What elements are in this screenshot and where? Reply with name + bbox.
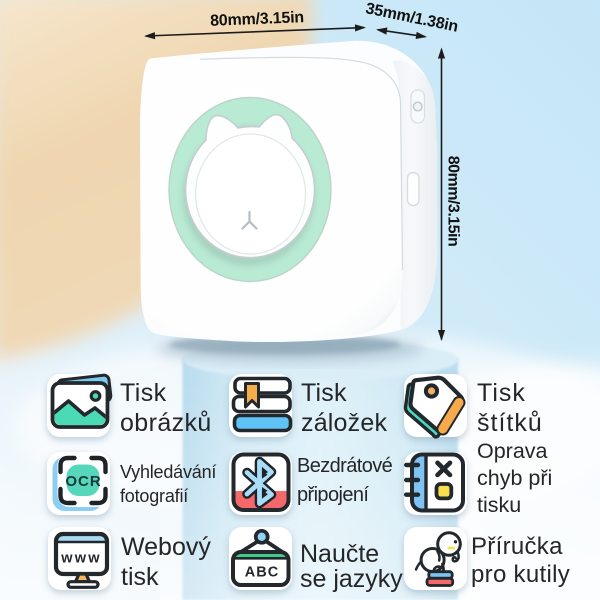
svg-text:80mm/3.15in: 80mm/3.15in <box>444 156 461 247</box>
svg-text:ABC: ABC <box>245 565 279 581</box>
svg-text:www: www <box>60 551 101 567</box>
svg-text:OCR: OCR <box>65 473 101 490</box>
